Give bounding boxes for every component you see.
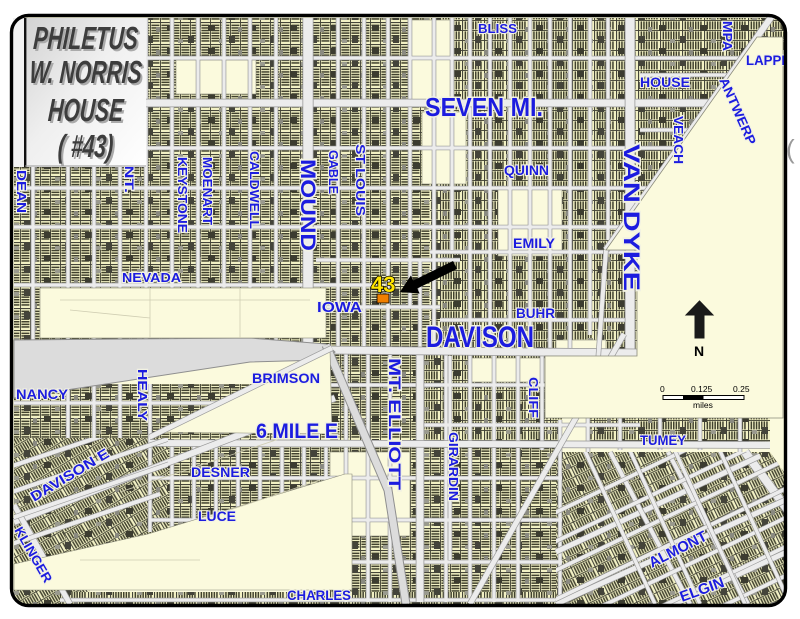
svg-text:GABLE: GABLE xyxy=(326,150,341,194)
svg-text:MOENART: MOENART xyxy=(200,157,215,225)
svg-text:( #43): ( #43) xyxy=(57,128,115,165)
svg-text:6 MILE E: 6 MILE E xyxy=(256,420,338,443)
svg-text:PHILETUS: PHILETUS xyxy=(32,20,139,57)
svg-text:HOUSE: HOUSE xyxy=(47,92,125,129)
svg-text:W. NORRIS: W. NORRIS xyxy=(28,54,143,91)
svg-text:miles: miles xyxy=(693,400,713,410)
svg-text:DEAN: DEAN xyxy=(14,170,29,213)
svg-text:CLIFF: CLIFF xyxy=(526,377,541,418)
svg-text:VEACH: VEACH xyxy=(671,116,686,164)
svg-text:TUMEY: TUMEY xyxy=(640,432,687,448)
svg-text:DAVISON: DAVISON xyxy=(426,321,534,354)
svg-text:CHARLES: CHARLES xyxy=(287,587,351,603)
svg-text:EMILY: EMILY xyxy=(513,235,556,251)
svg-text:CALDWELL: CALDWELL xyxy=(247,151,262,229)
svg-text:KEYSTONE: KEYSTONE xyxy=(175,157,190,233)
svg-text:MPA: MPA xyxy=(720,21,735,52)
svg-text:BUHR: BUHR xyxy=(516,305,555,321)
svg-text:BRIMSON: BRIMSON xyxy=(252,370,320,386)
svg-text:NANCY: NANCY xyxy=(16,386,69,402)
svg-text:LAPPI: LAPPI xyxy=(746,52,785,68)
svg-text:QUINN: QUINN xyxy=(504,162,549,178)
svg-text:ST LOUIS: ST LOUIS xyxy=(353,144,368,216)
svg-text:LUCE: LUCE xyxy=(198,508,236,524)
svg-text:HOUSE: HOUSE xyxy=(640,74,690,90)
svg-text:GIRARDIN: GIRARDIN xyxy=(446,432,461,501)
svg-text:HEALY: HEALY xyxy=(135,369,150,421)
svg-text:43: 43 xyxy=(371,272,395,297)
svg-text:MOUND: MOUND xyxy=(296,159,319,251)
svg-text:0.125: 0.125 xyxy=(691,384,713,394)
svg-text:NEVADA: NEVADA xyxy=(122,270,182,285)
svg-text:0: 0 xyxy=(660,384,665,394)
svg-text:0.25: 0.25 xyxy=(733,384,750,394)
svg-text:N: N xyxy=(694,343,704,359)
svg-text:IOWA: IOWA xyxy=(317,299,362,316)
svg-text:SEVEN MI.: SEVEN MI. xyxy=(425,92,543,122)
svg-text:(: ( xyxy=(786,134,795,164)
svg-text:BLISS: BLISS xyxy=(478,21,517,36)
svg-text:VAN DYKE: VAN DYKE xyxy=(619,144,644,291)
svg-text:DESNER: DESNER xyxy=(191,464,250,480)
svg-text:MT. ELLIOTT: MT. ELLIOTT xyxy=(385,358,404,491)
